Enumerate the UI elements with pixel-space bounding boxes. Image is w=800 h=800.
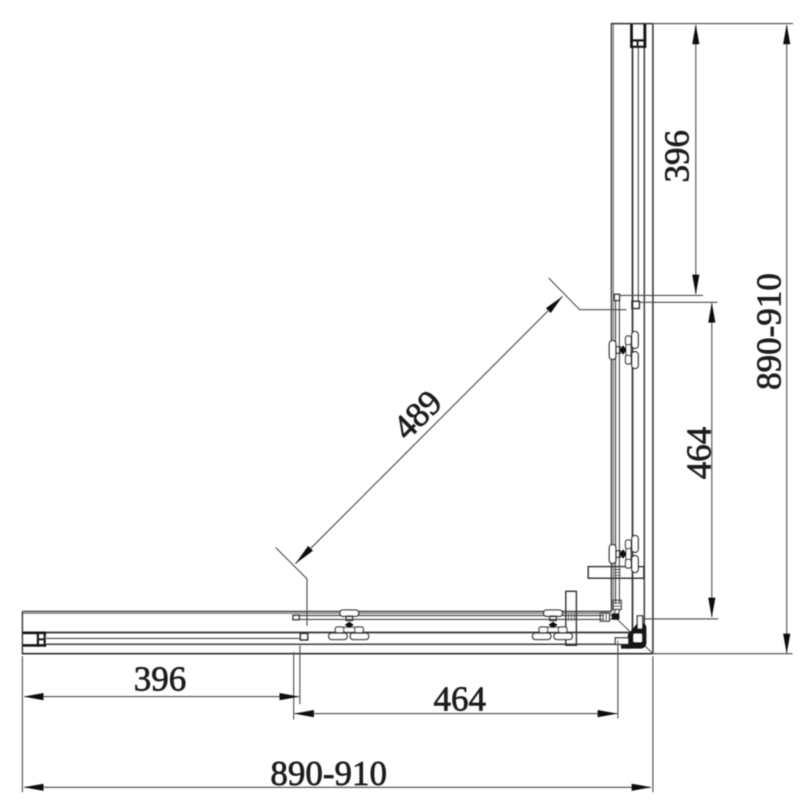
svg-text:464: 464	[679, 427, 718, 480]
svg-text:464: 464	[434, 679, 487, 718]
svg-text:396: 396	[658, 130, 697, 183]
svg-text:396: 396	[134, 659, 187, 698]
svg-text:890-910: 890-910	[270, 754, 387, 793]
svg-text:890-910: 890-910	[750, 273, 789, 390]
